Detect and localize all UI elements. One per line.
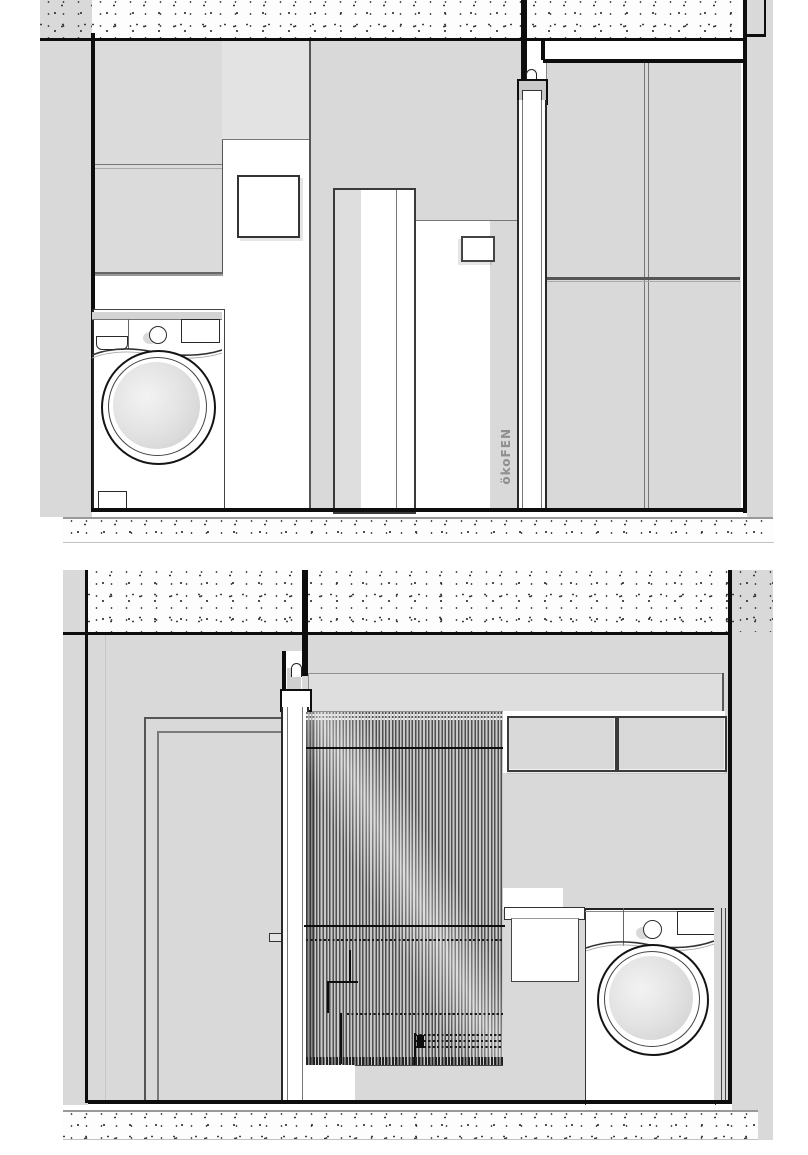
- hinged-door-leaf-line-v: [157, 731, 159, 1102]
- right-corner-line-v: [764, 0, 767, 36]
- curtain-top-dash-line: [306, 714, 503, 716]
- hinged-door-frame-v: [144, 717, 146, 1102]
- floor-line-lower: [88, 1100, 732, 1104]
- wardrobe-shelf-line: [546, 277, 740, 280]
- counter-front-panel: [511, 918, 579, 982]
- cabinet-bottom-trim-line: [95, 274, 223, 276]
- floor-slab-bottom-line: [63, 542, 774, 543]
- right-wall-section: [747, 0, 773, 520]
- curtain-top-dash-line-2: [306, 718, 503, 720]
- curtain-rail-line-upper: [306, 747, 503, 749]
- pocket-door-track-post-lower: [302, 570, 308, 676]
- wall-art-frame: [237, 175, 300, 238]
- wall-niche-top: [411, 188, 490, 221]
- curtain-rail-line-mid: [304, 925, 505, 927]
- floor-slab-lower: [63, 1112, 758, 1139]
- right-corner-line-h: [747, 34, 766, 37]
- track-step-line: [541, 38, 545, 60]
- brand-logo-text: ökoFEN: [500, 428, 512, 485]
- upper-cabinets: [95, 41, 223, 274]
- wall-corner-seam: [105, 635, 106, 1102]
- floor-slab-bottom-line-lower: [63, 1139, 758, 1140]
- tall-cabinet-side-panel: [335, 190, 361, 512]
- door-leaf-edge-line-2: [541, 100, 542, 510]
- niche-top-line: [411, 220, 517, 222]
- door-leaf-edge-line: [522, 100, 523, 510]
- hidden-edge-dash-d: [415, 1040, 503, 1042]
- door-leaf-edge-line-lower-2: [302, 707, 303, 1102]
- washer-lower-door-glass: [609, 956, 693, 1040]
- slat-curtain: [306, 712, 503, 1065]
- wall-cabinet-right: [617, 716, 727, 772]
- hidden-edge-v2: [327, 981, 329, 1013]
- washer-knob: [149, 326, 167, 344]
- hidden-edge-blob: [417, 1035, 424, 1048]
- hidden-edge-dash-b: [347, 1013, 503, 1015]
- washer-lower-display: [677, 911, 716, 935]
- hidden-edge-dash-e: [415, 1046, 503, 1048]
- under-curtain-gap: [304, 1065, 355, 1102]
- hinged-door-leaf-line-h: [157, 731, 281, 733]
- side-filler-line: [721, 908, 722, 1103]
- washer-door-glass: [113, 362, 200, 449]
- ceiling-slab-lower: [88, 570, 728, 632]
- sliding-door-leaf: [517, 100, 548, 510]
- ceiling-slab-corner: [40, 0, 92, 38]
- door-roller-lower: [291, 663, 302, 677]
- side-filler-line-2: [725, 908, 726, 1103]
- hidden-edge-dash-a: [306, 939, 503, 941]
- backsplash-patch: [503, 888, 563, 909]
- wall-area-upper: [309, 41, 521, 188]
- sliding-door-leaf-lower: [281, 707, 309, 1102]
- washer-display: [181, 319, 220, 343]
- wardrobe-divider-line: [644, 62, 645, 510]
- hidden-edge-dash-c: [415, 1034, 503, 1036]
- tall-cabinet: [333, 188, 416, 514]
- wall-corner-line: [309, 41, 311, 510]
- bulkhead-band: [308, 673, 723, 712]
- brand-logo: ökoFEN: [495, 421, 517, 485]
- wall-outlet-box: [461, 236, 495, 262]
- hidden-edge-h1: [328, 981, 358, 983]
- floor-slab: [63, 519, 774, 542]
- wardrobe-divider-line-2: [648, 62, 649, 510]
- left-wall-section: [40, 0, 92, 517]
- hidden-edge-v1: [349, 950, 351, 983]
- tall-cabinet-door-gap-line: [396, 190, 397, 512]
- wall-cabinet-left: [507, 716, 617, 772]
- floor-line: [92, 508, 743, 512]
- drawing-sheet: ökoFEN: [0, 0, 808, 1155]
- ceiling-slab: [92, 0, 743, 38]
- wardrobe-shelf-line-2: [546, 281, 740, 282]
- right-wall-section-lower: [732, 570, 774, 1140]
- wall-sliver: [309, 188, 333, 510]
- hinged-door-frame-h: [144, 717, 281, 719]
- cabinet-shelf-line-2: [95, 168, 222, 169]
- door-leaf-edge-line-lower: [287, 707, 288, 1102]
- right-wall-slab-corner: [732, 570, 774, 632]
- cabinet-shelf-line: [95, 164, 222, 165]
- wardrobe-top-line: [543, 59, 743, 63]
- right-wall-cut-line-lower: [728, 570, 732, 1104]
- wall-soffit-light: [222, 41, 309, 140]
